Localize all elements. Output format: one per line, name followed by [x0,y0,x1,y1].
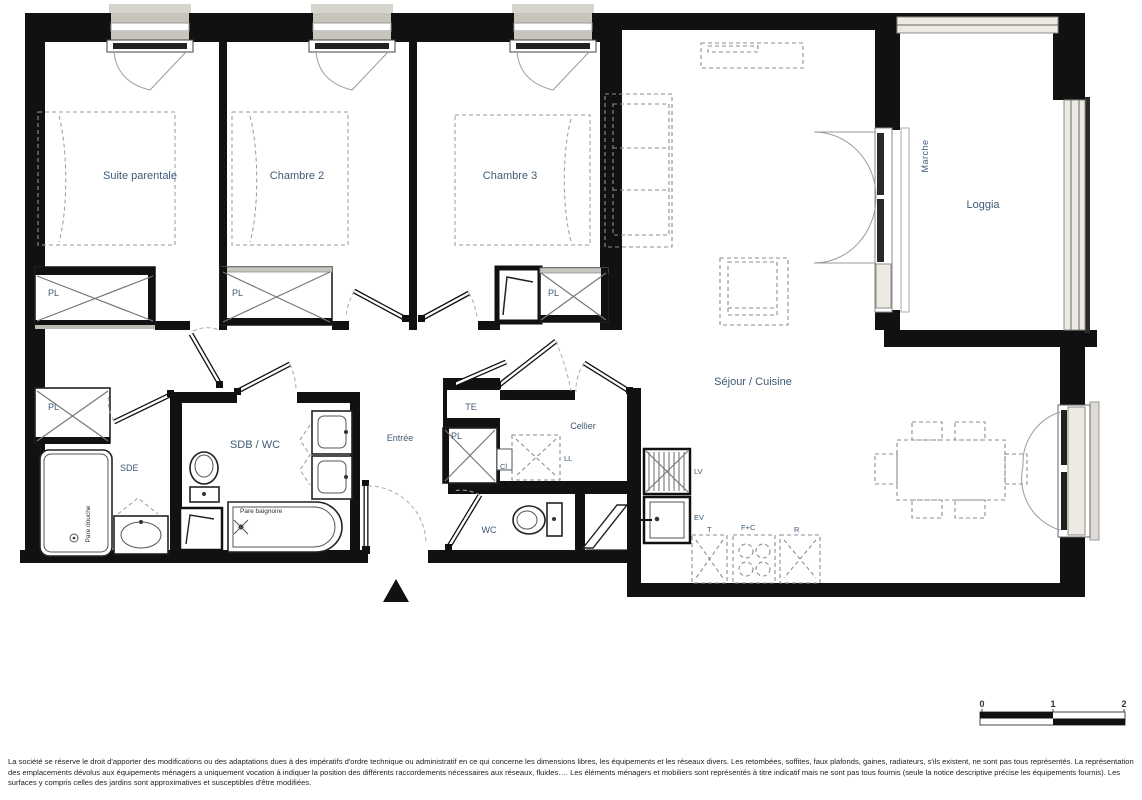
room-label-sejour-cuisine: Séjour / Cuisine [714,376,792,388]
room-label-suite-parentale: Suite parentale [103,170,177,182]
armchair [720,258,788,325]
sde-washbasin [114,498,168,554]
door-suite-parentale [191,328,223,388]
window-icon [510,4,596,90]
sdb-door-panel [180,508,222,550]
label-pl-chambre3: PL [548,288,559,298]
kitchen-counter [692,535,820,583]
door-sdb-wc [234,364,296,395]
cooktop [733,535,775,583]
room-label-sde: SDE [120,463,139,473]
label-pare-douche: Pare douche [85,505,92,542]
label-fc-cooker: F+C [741,523,756,532]
loggia-french-door [814,128,892,312]
wc-door-panel [583,505,628,550]
room-label-cellier: Cellier [570,421,596,431]
door-chambre-2 [346,291,409,322]
room-label-chambre-3: Chambre 3 [483,170,537,182]
room-label-loggia: Loggia [966,199,1000,211]
label-t-counter: T [707,525,712,534]
window-icon [309,4,395,90]
dining-table [875,422,1027,518]
closet-suite-parentale [35,267,155,329]
sdb-double-basin [300,411,352,499]
label-te: TE [465,402,477,412]
room-label-entree: Entrée [387,433,414,443]
entrance-door [362,480,426,554]
room-label-chambre-2: Chambre 2 [270,170,324,182]
wc-toilet [513,503,562,536]
label-pl-chambre2: PL [232,288,243,298]
door-cellier [576,363,633,394]
label-cl: Cl [500,462,507,471]
loggia-step [901,128,909,312]
scale-bar: 0 1 2 [979,699,1126,725]
label-pl-entree: PL [451,431,462,441]
duct-chambre-3 [497,268,540,322]
scale-tick-0: 0 [979,699,984,709]
label-ll-washer: LL [564,454,572,463]
cellier-washer [497,435,560,480]
door-sde [108,390,174,422]
dishwasher [644,449,690,494]
bedroom-windows [107,4,596,90]
room-labels: Suite parentale Chambre 2 Chambre 3 Séjo… [103,139,1000,535]
door-wc [445,490,480,551]
legal-disclaimer: La société se réserve le droit d'apporte… [8,757,1134,789]
room-label-sdb-wc: SDB / WC [230,439,280,451]
tv-cabinet [701,43,803,68]
label-lv-dishwasher: LV [694,467,703,476]
entrance-arrow-icon [383,579,409,602]
scale-tick-1: 1 [1050,699,1055,709]
label-pl-suite: PL [48,288,59,298]
floor-plan: Suite parentale Chambre 2 Chambre 3 Séjo… [0,0,1142,800]
sdb-toilet [190,452,219,502]
label-pare-baignoire: Pare baignoire [240,508,283,515]
sejour-right-window [1022,402,1099,540]
label-ev-sink: EV [694,513,704,522]
window-icon [107,4,193,90]
label-pl-sde: PL [48,402,59,412]
shower [40,450,112,556]
door-chambre-3 [418,293,477,322]
floor-plan-page: Suite parentale Chambre 2 Chambre 3 Séjo… [0,0,1142,800]
scale-tick-2: 2 [1121,699,1126,709]
closet-sde [35,388,110,444]
label-marche: Marche [920,139,930,172]
label-r-fridge: R [794,525,800,534]
room-label-wc: WC [482,525,497,535]
